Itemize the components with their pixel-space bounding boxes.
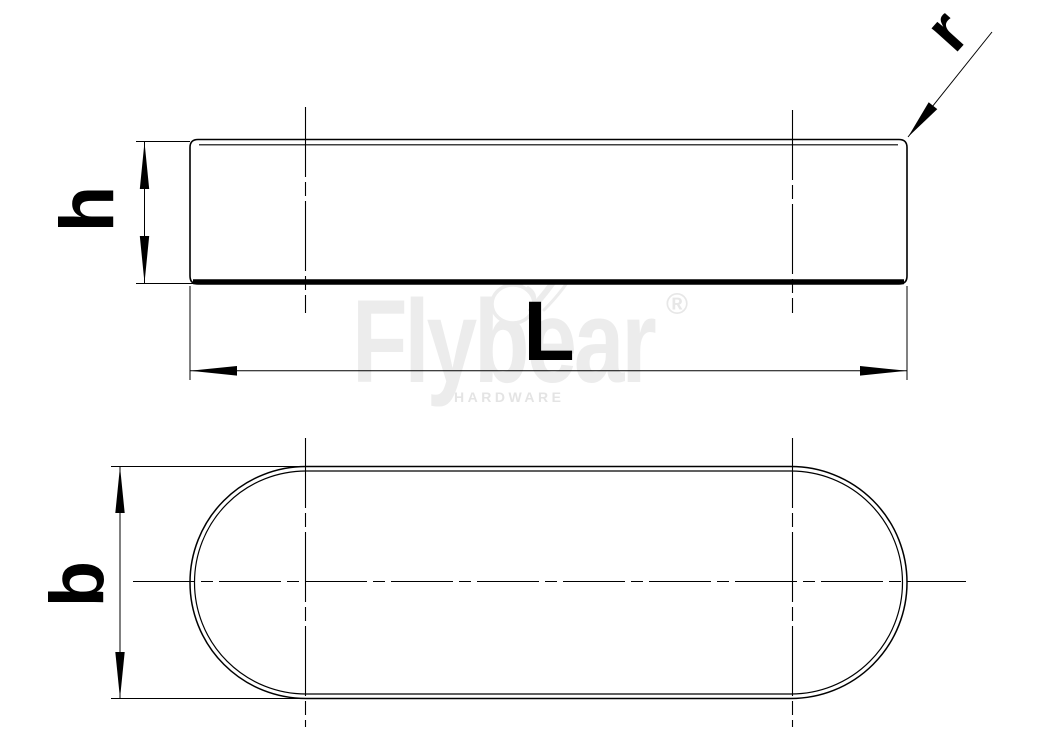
front-view-outline [190,140,907,285]
arrowhead-right [860,366,907,376]
front-view [190,107,907,313]
dimension-label-L: L [509,291,589,371]
arrowhead-leader [908,102,937,137]
dimension-h [136,142,198,284]
plan-view [133,438,966,727]
arrowhead-up [115,467,124,514]
dimension-label-b: b [36,542,120,626]
arrowhead-up [140,142,149,189]
arrowhead-down [115,652,124,699]
key-drawing-svg [0,0,1049,756]
dimension-label-h: h [46,167,130,251]
plan-view-outline [190,467,907,699]
arrowhead-left [190,366,237,376]
arrowhead-down [140,236,149,283]
technical-drawing-page: Flybear ® HARDWARE [0,0,1049,756]
